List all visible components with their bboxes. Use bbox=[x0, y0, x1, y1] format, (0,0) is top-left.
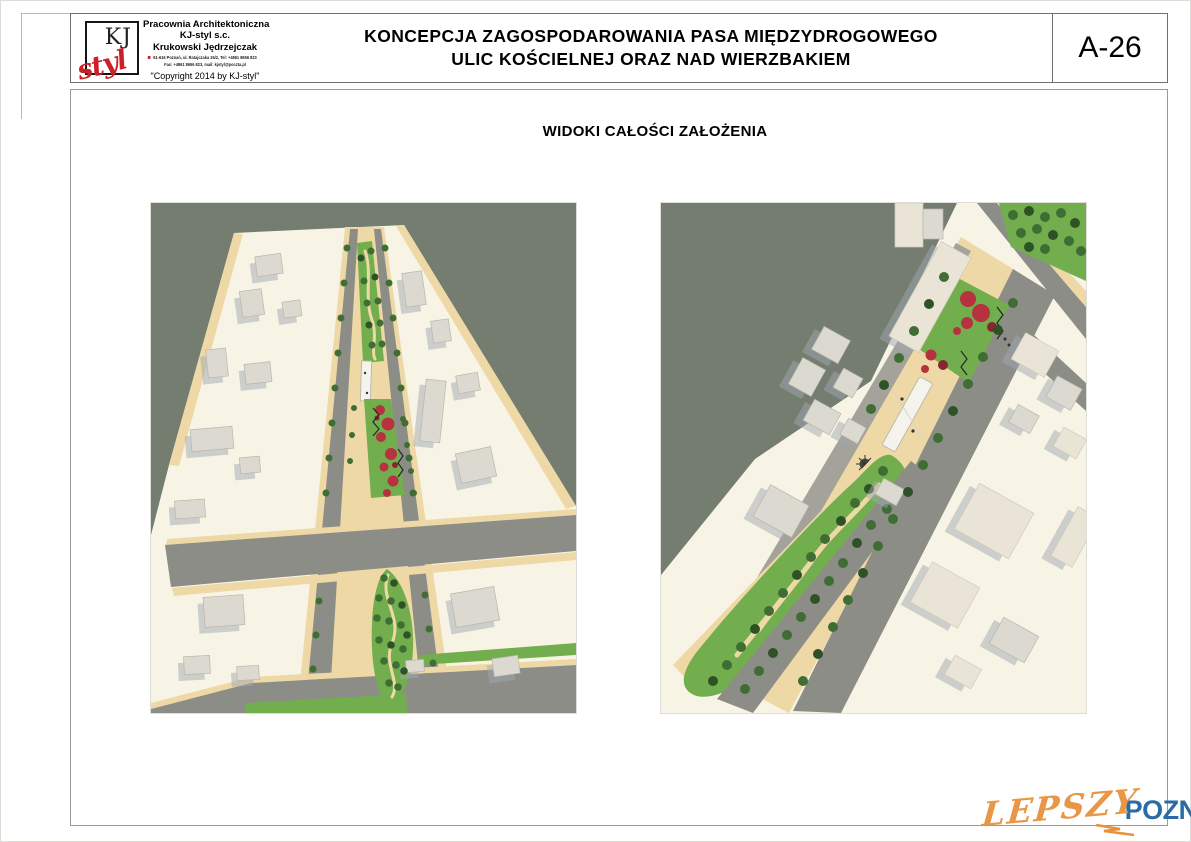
lepszypoznan-watermark: LEPSZY POZNAN .pl bbox=[982, 788, 1191, 836]
watermark-tail-swoosh bbox=[1094, 823, 1146, 837]
sheet-number: A-26 bbox=[1052, 14, 1167, 82]
trim-line-top bbox=[21, 13, 71, 14]
kj-styl-logo: KJ styl bbox=[85, 21, 139, 75]
copyright-note: "Copyright 2014 by KJ-styl" bbox=[143, 71, 267, 81]
trim-line-left bbox=[21, 13, 22, 119]
firm-name-line3: Krukowski Jędrzejczak bbox=[143, 42, 267, 53]
sheet-title-line1: KONCEPCJA ZAGOSPODAROWANIA PASA MIĘDZYDR… bbox=[301, 25, 1001, 48]
title-block: KJ styl Pracownia Architektoniczna KJ-st… bbox=[70, 13, 1168, 83]
sheet-title: KONCEPCJA ZAGOSPODAROWANIA PASA MIĘDZYDR… bbox=[301, 14, 1001, 82]
firm-name-line1: Pracownia Architektoniczna bbox=[143, 19, 267, 30]
logo-styl-script: styl bbox=[74, 44, 130, 86]
firm-name-line2: KJ-styl s.c. bbox=[143, 30, 267, 41]
sheet-title-line2: ULIC KOŚCIELNEJ ORAZ NAD WIERZBAKIEM bbox=[301, 48, 1001, 71]
median-pavilion bbox=[360, 361, 371, 401]
render-right-closeup bbox=[661, 203, 1086, 713]
render-left-overview bbox=[151, 203, 576, 713]
firm-info: Pracownia Architektoniczna KJ-styl s.c. … bbox=[143, 19, 267, 81]
sheet-page: { "header": { "logo": { "top": "KJ", "sc… bbox=[0, 0, 1191, 842]
firm-address-line2: Fax: +4861 8656 823, mail: kjstyl@poczta… bbox=[150, 62, 259, 69]
red-tick-mark bbox=[148, 56, 151, 59]
drawing-subtitle: WIDOKI CAŁOŚCI ZAŁOŻENIA bbox=[455, 123, 855, 140]
firm-address: 61-616 Poznań, ul. Ratajczaka 26/2, Tel:… bbox=[150, 55, 259, 68]
firm-address-line1: 61-616 Poznań, ul. Ratajczaka 26/2, Tel:… bbox=[150, 55, 259, 62]
